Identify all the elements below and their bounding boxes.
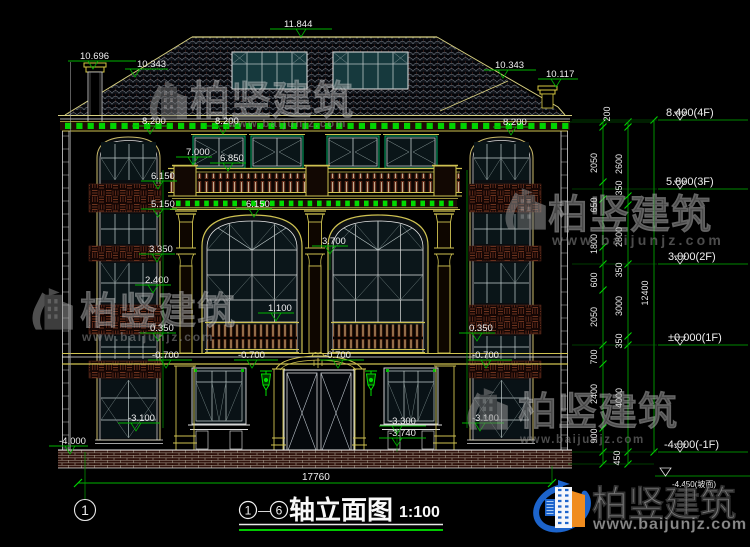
svg-text:3.700: 3.700 <box>322 236 346 247</box>
svg-text:600: 600 <box>589 272 599 287</box>
svg-text:3.350: 3.350 <box>149 244 173 255</box>
svg-text:www.baijunjz.com: www.baijunjz.com <box>81 330 214 344</box>
svg-text:200: 200 <box>602 106 612 121</box>
svg-text:-0.700: -0.700 <box>152 350 179 361</box>
svg-text:10.696: 10.696 <box>80 51 109 62</box>
svg-text:3000: 3000 <box>614 296 624 316</box>
svg-text:2.400: 2.400 <box>145 275 169 286</box>
svg-text:5.800(3F): 5.800(3F) <box>666 176 714 188</box>
svg-text:2050: 2050 <box>589 153 599 173</box>
svg-text:1: 1 <box>81 502 89 518</box>
svg-text:7.000: 7.000 <box>186 147 210 158</box>
svg-text:-0.700: -0.700 <box>238 350 265 361</box>
svg-text:1:100: 1:100 <box>399 504 440 521</box>
svg-text:-3.740: -3.740 <box>389 428 416 439</box>
svg-text:www.baijunjz.com: www.baijunjz.com <box>551 232 724 248</box>
svg-text:6: 6 <box>276 504 283 518</box>
svg-text:1: 1 <box>245 504 252 518</box>
svg-text:www.baijunjz.com: www.baijunjz.com <box>592 516 747 533</box>
svg-text:8.400(4F): 8.400(4F) <box>666 107 714 119</box>
svg-text:8.200: 8.200 <box>503 117 527 128</box>
svg-text:-4.000(-1F): -4.000(-1F) <box>664 439 719 451</box>
svg-text:2600: 2600 <box>614 154 624 174</box>
svg-text:柏竖建筑: 柏竖建筑 <box>548 193 712 237</box>
svg-text:柏竖建筑: 柏竖建筑 <box>518 391 678 434</box>
svg-text:0.350: 0.350 <box>469 323 493 334</box>
svg-text:-0.700: -0.700 <box>472 350 499 361</box>
svg-text:2050: 2050 <box>589 307 599 327</box>
svg-text:-3.100: -3.100 <box>128 413 155 424</box>
svg-text:-3.300: -3.300 <box>389 416 416 427</box>
svg-text:6.850: 6.850 <box>220 153 244 164</box>
svg-text:柏竖建筑: 柏竖建筑 <box>190 79 354 123</box>
svg-text:—: — <box>258 503 271 518</box>
svg-text:±0.000(1F): ±0.000(1F) <box>668 332 722 344</box>
svg-text:6.150: 6.150 <box>246 199 270 210</box>
svg-text:www.baijunjz.com: www.baijunjz.com <box>519 434 645 446</box>
svg-text:10.117: 10.117 <box>546 69 574 80</box>
svg-text:350: 350 <box>614 333 624 348</box>
svg-text:轴立面图: 轴立面图 <box>289 495 393 525</box>
svg-text:700: 700 <box>589 349 599 364</box>
svg-text:17760: 17760 <box>302 472 330 483</box>
svg-text:-0.700: -0.700 <box>324 350 351 361</box>
svg-text:www.baijunjz.com: www.baijunjz.com <box>227 118 347 130</box>
svg-text:450: 450 <box>612 450 622 465</box>
svg-text:10.343: 10.343 <box>495 60 524 71</box>
svg-text:10.343: 10.343 <box>137 59 166 70</box>
svg-text:柏竖建筑: 柏竖建筑 <box>80 291 236 333</box>
svg-text:-4.000: -4.000 <box>59 436 86 447</box>
svg-text:1.100: 1.100 <box>268 303 292 314</box>
svg-text:350: 350 <box>614 262 624 277</box>
svg-text:12400: 12400 <box>640 280 650 305</box>
svg-text:11.844: 11.844 <box>284 19 312 30</box>
